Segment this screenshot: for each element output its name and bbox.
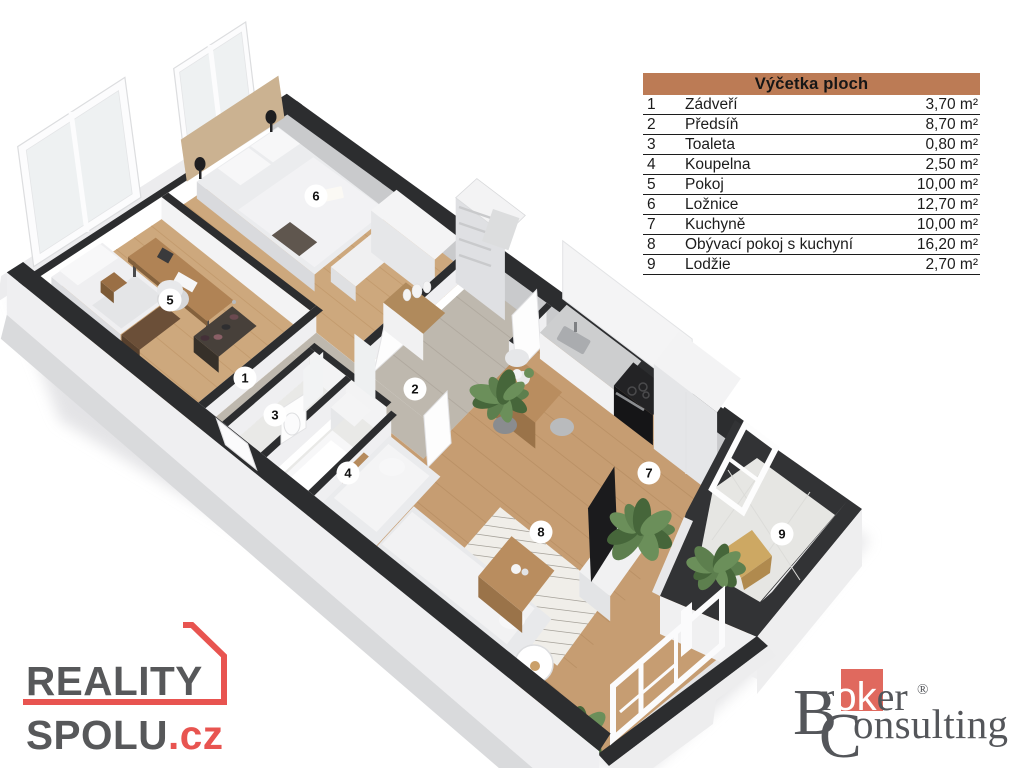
svg-text:SPOLU.cz: SPOLU.cz (26, 712, 224, 758)
svg-text:7: 7 (645, 466, 652, 481)
svg-text:4: 4 (344, 466, 352, 481)
svg-text:®: ® (917, 682, 928, 698)
svg-text:2: 2 (411, 382, 418, 397)
svg-text:REALITY: REALITY (26, 658, 203, 704)
svg-text:8: 8 (537, 525, 544, 540)
svg-text:5: 5 (166, 293, 173, 308)
svg-text:6: 6 (312, 189, 319, 204)
svg-text:9: 9 (778, 527, 785, 542)
svg-text:onsulting: onsulting (853, 701, 1008, 747)
svg-text:3: 3 (271, 408, 278, 423)
svg-text:1: 1 (241, 371, 248, 386)
